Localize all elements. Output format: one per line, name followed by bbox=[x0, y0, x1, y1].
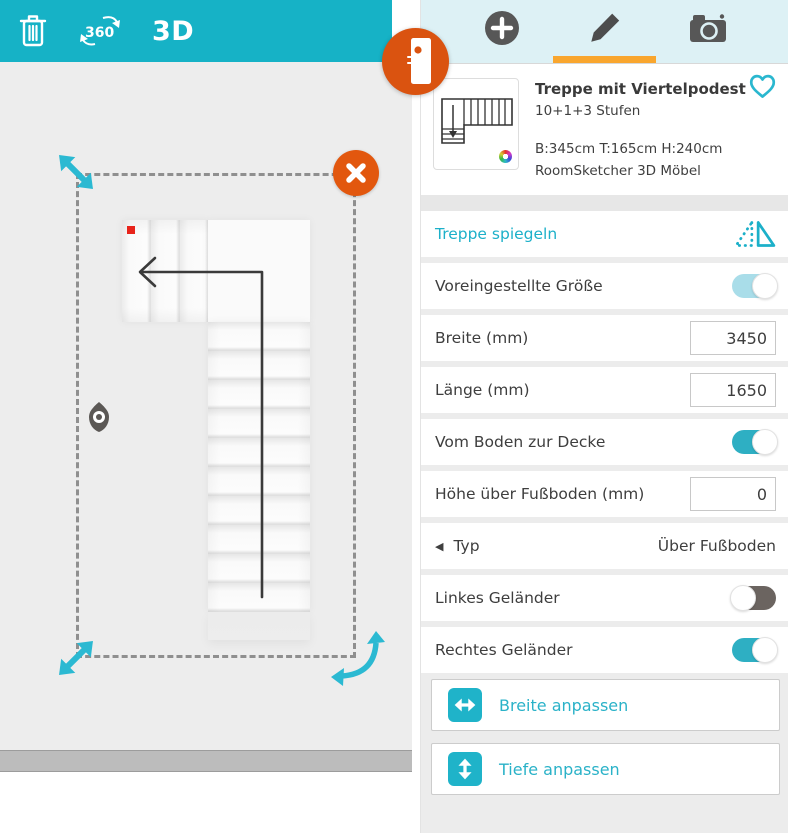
favorite-button[interactable] bbox=[749, 74, 776, 103]
properties-panel: Treppe mit Viertelpodest 10+1+3 Stufen B… bbox=[420, 0, 788, 833]
rotate-360-icon: 360 bbox=[76, 11, 124, 51]
adjust-depth-button[interactable]: Tiefe anpassen bbox=[431, 743, 780, 795]
row-type[interactable]: ◀ Typ Über Fußboden bbox=[421, 523, 788, 569]
preset-size-label: Voreingestellte Größe bbox=[435, 277, 603, 295]
item-info: Treppe mit Viertelpodest 10+1+3 Stufen B… bbox=[535, 78, 776, 179]
adjust-width-label: Breite anpassen bbox=[499, 696, 628, 715]
vertical-arrows-icon bbox=[448, 752, 482, 786]
preset-size-toggle[interactable] bbox=[732, 274, 776, 298]
view-3d-label: 3D bbox=[152, 16, 194, 47]
section-divider bbox=[421, 195, 788, 211]
row-mirror-stairs: Treppe spiegeln bbox=[421, 211, 788, 257]
height-above-floor-label: Höhe über Fußboden (mm) bbox=[435, 485, 644, 503]
canvas-toolbar: 360 3D bbox=[0, 0, 392, 62]
height-above-floor-input[interactable] bbox=[690, 477, 776, 511]
door-icon bbox=[399, 34, 433, 90]
item-source: RoomSketcher 3D Möbel bbox=[535, 163, 776, 179]
toggle-knob bbox=[752, 637, 778, 663]
pencil-icon bbox=[587, 10, 623, 46]
app-window: 360 3D bbox=[0, 0, 788, 833]
type-prev-arrow-icon[interactable]: ◀ bbox=[435, 540, 443, 553]
heart-icon bbox=[749, 74, 776, 99]
floor-to-ceiling-label: Vom Boden zur Decke bbox=[435, 433, 605, 451]
toggle-knob bbox=[752, 429, 778, 455]
tab-camera[interactable] bbox=[656, 0, 759, 63]
rotate-handle[interactable] bbox=[330, 630, 386, 686]
rotate-arrow-icon bbox=[330, 630, 386, 686]
mirror-icon[interactable] bbox=[734, 217, 776, 251]
door-tool-badge[interactable] bbox=[382, 28, 449, 95]
type-value: Über Fußboden bbox=[658, 537, 776, 555]
adjust-depth-label: Tiefe anpassen bbox=[499, 760, 620, 779]
trash-button[interactable] bbox=[18, 13, 48, 49]
toggle-knob bbox=[752, 273, 778, 299]
rotate-360-button[interactable]: 360 bbox=[76, 11, 124, 51]
item-title: Treppe mit Viertelpodest bbox=[535, 78, 776, 98]
item-card: Treppe mit Viertelpodest 10+1+3 Stufen B… bbox=[421, 64, 788, 195]
item-thumbnail[interactable] bbox=[433, 78, 519, 170]
row-right-railing: Rechtes Geländer bbox=[421, 627, 788, 673]
floor-to-ceiling-toggle[interactable] bbox=[732, 430, 776, 454]
type-label: Typ bbox=[453, 537, 479, 555]
tab-edit[interactable] bbox=[553, 0, 656, 63]
row-height-above-floor: Höhe über Fußboden (mm) bbox=[421, 471, 788, 517]
row-length: Länge (mm) bbox=[421, 367, 788, 413]
item-dimensions: B:345cm T:165cm H:240cm bbox=[535, 141, 776, 157]
trash-icon bbox=[18, 13, 48, 49]
adjust-width-button[interactable]: Breite anpassen bbox=[431, 679, 780, 731]
color-options-icon[interactable] bbox=[499, 150, 512, 163]
right-railing-toggle[interactable] bbox=[732, 638, 776, 662]
close-icon bbox=[345, 162, 367, 184]
length-label: Länge (mm) bbox=[435, 381, 530, 399]
mirror-stairs-link[interactable]: Treppe spiegeln bbox=[435, 225, 557, 243]
row-width: Breite (mm) bbox=[421, 315, 788, 361]
selection-rectangle bbox=[76, 173, 356, 658]
rotate-360-label: 360 bbox=[85, 25, 114, 41]
camera-icon bbox=[689, 13, 727, 43]
floorplan-canvas[interactable] bbox=[0, 62, 412, 750]
row-left-railing: Linkes Geländer bbox=[421, 575, 788, 621]
item-subtitle: 10+1+3 Stufen bbox=[535, 103, 776, 119]
left-railing-label: Linkes Geländer bbox=[435, 589, 560, 607]
width-input[interactable] bbox=[690, 321, 776, 355]
canvas-horizontal-scrollbar[interactable] bbox=[0, 750, 412, 772]
left-railing-toggle[interactable] bbox=[732, 586, 776, 610]
toggle-knob bbox=[730, 585, 756, 611]
panel-tab-bar bbox=[421, 0, 788, 64]
view-3d-button[interactable]: 3D bbox=[152, 16, 194, 47]
row-preset-size: Voreingestellte Größe bbox=[421, 263, 788, 309]
right-railing-label: Rechtes Geländer bbox=[435, 641, 573, 659]
plus-icon bbox=[484, 10, 520, 46]
delete-selection-button[interactable] bbox=[333, 150, 379, 196]
width-label: Breite (mm) bbox=[435, 329, 528, 347]
tab-add[interactable] bbox=[450, 0, 553, 63]
horizontal-arrows-icon bbox=[448, 688, 482, 722]
row-floor-to-ceiling: Vom Boden zur Decke bbox=[421, 419, 788, 465]
length-input[interactable] bbox=[690, 373, 776, 407]
